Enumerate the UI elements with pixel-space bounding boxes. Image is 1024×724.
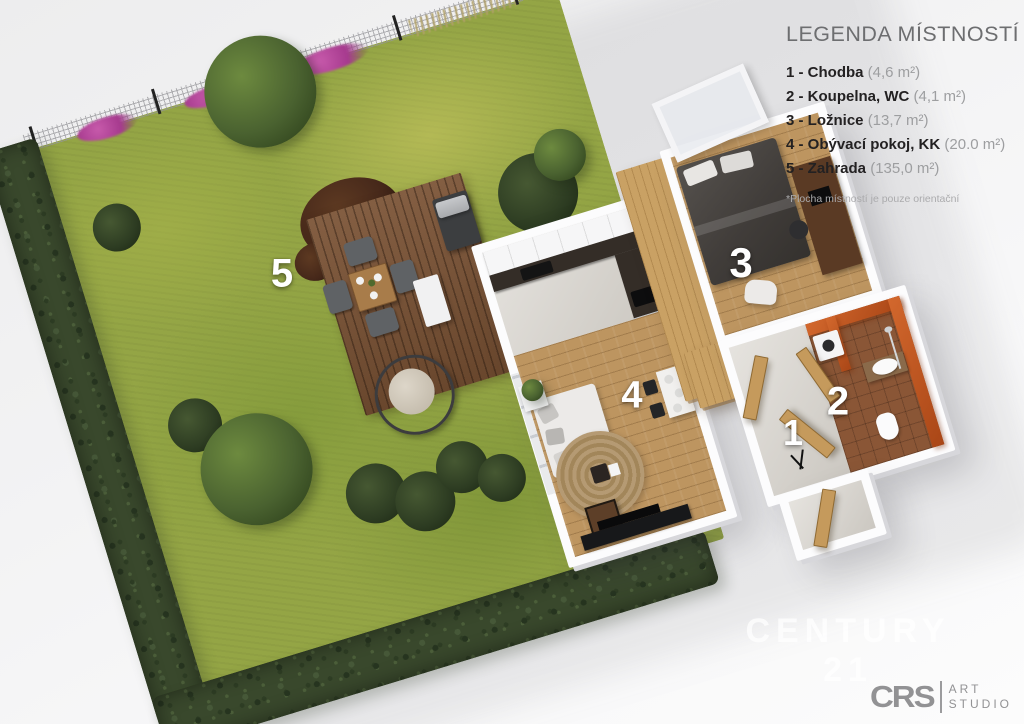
legend-item-label: 5 - Zahrada bbox=[786, 160, 866, 177]
legend-item-label: 3 - Ložnice bbox=[786, 112, 864, 129]
sofa-pillow bbox=[545, 427, 565, 446]
legend-item-label: 2 - Koupelna, WC bbox=[786, 88, 909, 105]
legend: LEGENDA MÍSTNOSTÍ 1 - Chodba (4,6 m²) 2 … bbox=[786, 22, 1022, 205]
logo-initials: CRS bbox=[870, 680, 934, 715]
logo-divider bbox=[940, 681, 942, 713]
legend-footnote: *Plocha místností je pouze orientační bbox=[786, 193, 1022, 205]
legend-item: 1 - Chodba (4,6 m²) bbox=[786, 61, 1022, 85]
label-living: 4 bbox=[621, 375, 642, 418]
legend-item-area: (135,0 m²) bbox=[870, 160, 939, 177]
legend-title: LEGENDA MÍSTNOSTÍ bbox=[786, 22, 1022, 47]
legend-item-label: 4 - Obývací pokoj, KK bbox=[786, 136, 940, 153]
legend-item-area: (4,1 m²) bbox=[914, 88, 967, 105]
floorplan-render: 5 3 4 1 2 LEGENDA MÍSTNOSTÍ 1 - Chodba (… bbox=[0, 0, 1024, 724]
legend-item-area: (13,7 m²) bbox=[868, 112, 929, 129]
legend-item-label: 1 - Chodba bbox=[786, 64, 864, 81]
legend-item-area: (20.0 m²) bbox=[944, 136, 1005, 153]
label-garden: 5 bbox=[271, 252, 293, 297]
logo-line2: STUDIO bbox=[949, 697, 1012, 712]
label-hallway: 1 bbox=[783, 412, 803, 454]
legend-item: 5 - Zahrada (135,0 m²) bbox=[786, 157, 1022, 181]
label-bedroom: 3 bbox=[729, 239, 752, 287]
legend-item: 4 - Obývací pokoj, KK (20.0 m²) bbox=[786, 133, 1022, 157]
crs-art-studio-logo: CRS ART STUDIO bbox=[870, 678, 1012, 716]
legend-item: 3 - Ložnice (13,7 m²) bbox=[786, 109, 1022, 133]
label-bathroom: 2 bbox=[827, 380, 849, 425]
legend-item-area: (4,6 m²) bbox=[868, 64, 921, 81]
legend-item: 2 - Koupelna, WC (4,1 m²) bbox=[786, 85, 1022, 109]
logo-line1: ART bbox=[949, 682, 1012, 697]
